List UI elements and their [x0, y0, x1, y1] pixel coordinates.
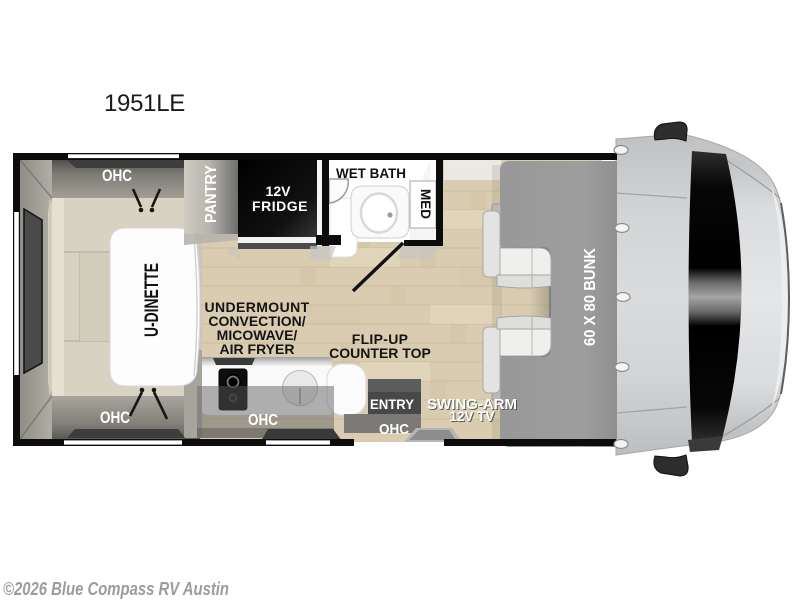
svg-text:COUNTER TOP: COUNTER TOP	[329, 345, 431, 361]
svg-text:WET BATH: WET BATH	[336, 165, 406, 181]
svg-text:OHC: OHC	[379, 421, 409, 438]
svg-text:MED: MED	[418, 189, 433, 219]
svg-text:ENTRY: ENTRY	[370, 396, 415, 412]
svg-text:AIR FRYER: AIR FRYER	[220, 341, 295, 357]
svg-text:12V TV: 12V TV	[449, 409, 494, 424]
svg-text:©2026 Blue Compass RV Austin: ©2026 Blue Compass RV Austin	[3, 579, 229, 599]
svg-text:PANTRY: PANTRY	[203, 164, 220, 223]
svg-text:OHC: OHC	[100, 409, 130, 427]
svg-text:60 X 80 BUNK: 60 X 80 BUNK	[582, 248, 599, 346]
svg-text:FRIDGE: FRIDGE	[252, 198, 308, 214]
svg-text:OHC: OHC	[248, 412, 278, 429]
svg-text:1951LE: 1951LE	[104, 90, 185, 117]
svg-text:U-DINETTE: U-DINETTE	[142, 263, 163, 337]
svg-text:12V: 12V	[266, 183, 292, 199]
svg-text:OHC: OHC	[102, 167, 132, 185]
